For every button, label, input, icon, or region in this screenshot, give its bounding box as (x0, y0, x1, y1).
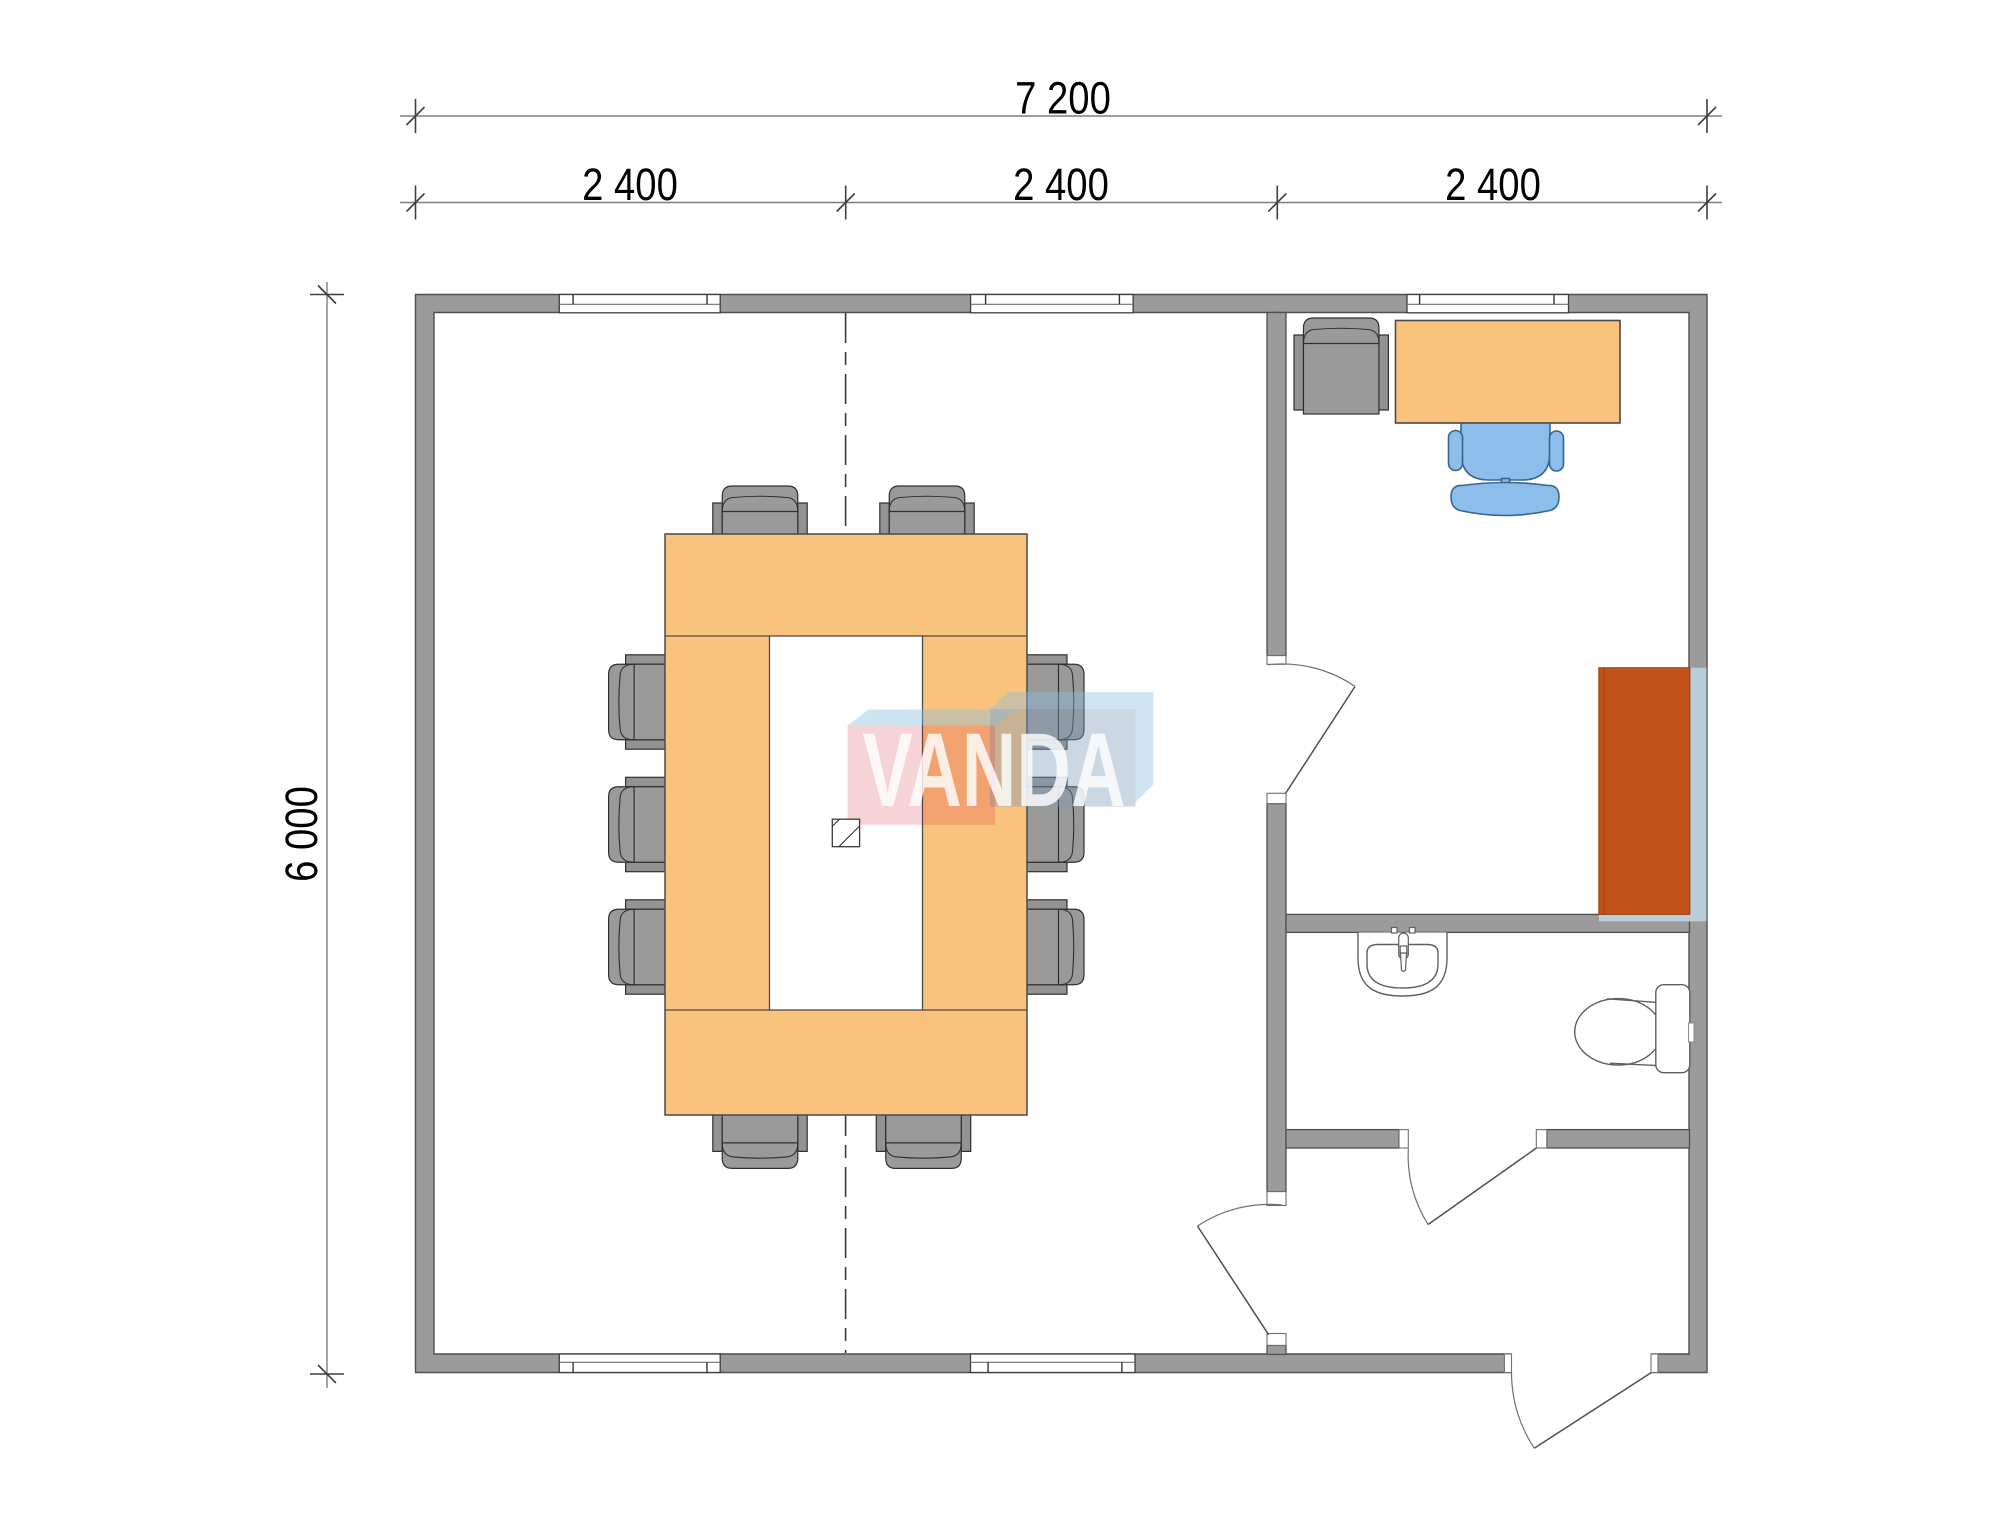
svg-text:2 400: 2 400 (1013, 159, 1109, 210)
svg-text:2 400: 2 400 (1445, 159, 1541, 210)
svg-text:2 400: 2 400 (582, 159, 678, 210)
svg-text:7 200: 7 200 (1015, 73, 1111, 124)
svg-text:VANDA: VANDA (862, 712, 1125, 829)
svg-text:6 000: 6 000 (276, 786, 327, 882)
